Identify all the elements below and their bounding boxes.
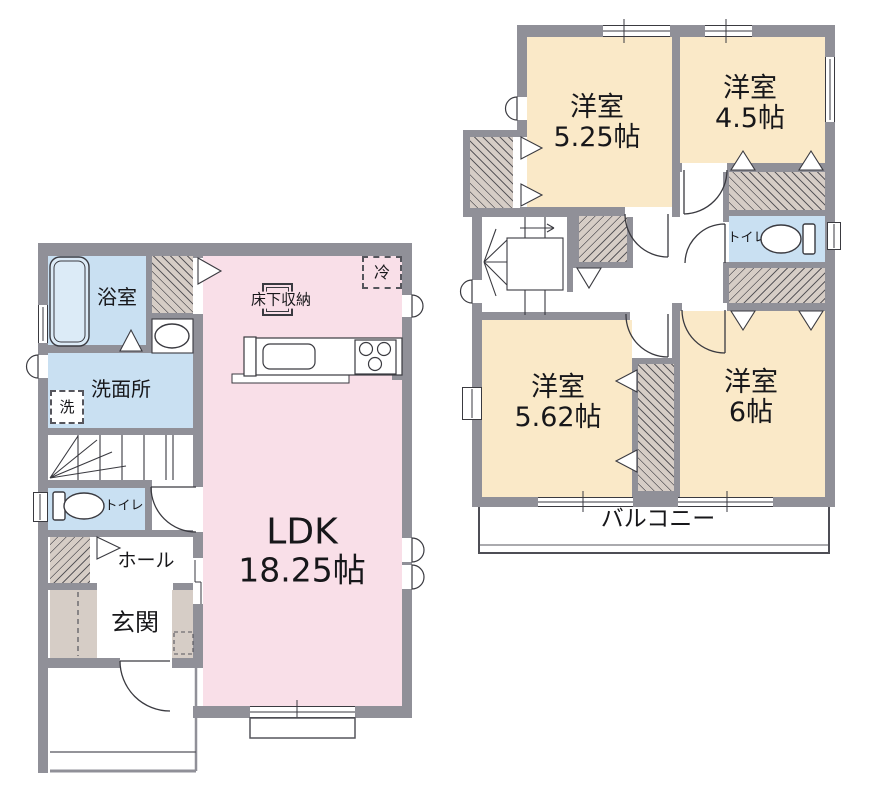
door-opening xyxy=(682,303,727,311)
door-opening xyxy=(402,295,412,317)
bath-label: 浴室 xyxy=(97,286,137,308)
door-opening xyxy=(630,312,672,320)
wall-segment xyxy=(472,207,482,507)
closet xyxy=(729,268,825,303)
wall-segment xyxy=(38,428,203,435)
room-562-name: 洋室 xyxy=(514,373,601,403)
ldk-name: LDK xyxy=(238,512,365,552)
closet xyxy=(152,256,193,313)
room-6-size: 6帖 xyxy=(724,398,778,428)
window xyxy=(603,25,670,37)
wall-segment xyxy=(38,243,412,256)
shoe-cabinet-left xyxy=(50,590,97,658)
window xyxy=(827,222,841,250)
washroom-label: 洗面所 xyxy=(91,378,151,400)
underfloor-storage-label: 床下収納 xyxy=(250,292,312,309)
room-562-label: 洋室 5.62帖 xyxy=(514,373,601,433)
sliding-door xyxy=(193,558,203,604)
window xyxy=(250,706,355,718)
room-562-size: 5.62帖 xyxy=(514,403,601,433)
laundry-box: 洗 xyxy=(50,390,84,424)
wall-segment xyxy=(145,480,152,537)
room-45-name: 洋室 xyxy=(715,74,785,104)
window xyxy=(462,387,482,420)
door-opening xyxy=(625,207,672,217)
door-opening xyxy=(517,97,527,120)
closet xyxy=(579,216,627,262)
hall-closet xyxy=(50,537,90,583)
room-6-name: 洋室 xyxy=(724,368,778,398)
ldk-size: 18.25帖 xyxy=(238,553,365,590)
balcony-label: バルコニー xyxy=(601,507,716,533)
floor-plan: 冷 洗 浴室 洗面所 トイレ ホール 玄関 LDK 18.25帖 床下収納 洋室… xyxy=(0,0,873,800)
door-opening xyxy=(120,658,172,668)
room-525-name: 洋室 xyxy=(553,93,640,123)
wall-segment xyxy=(38,480,152,488)
window xyxy=(705,25,752,37)
wall-segment xyxy=(152,313,193,319)
room-45-size: 4.5帖 xyxy=(715,104,785,134)
stairs-1f xyxy=(50,435,173,480)
hall-label: ホール xyxy=(117,550,174,571)
door-opening xyxy=(193,487,203,532)
closet xyxy=(638,364,674,491)
closet-front xyxy=(513,137,520,208)
window xyxy=(825,57,835,122)
wall-segment xyxy=(517,25,527,137)
room-525-size: 5.25帖 xyxy=(553,123,640,153)
refrigerator-box: 冷 xyxy=(362,256,402,289)
laundry-label: 洗 xyxy=(59,399,74,416)
door-opening xyxy=(193,258,203,314)
wall-segment xyxy=(723,210,825,216)
door-opening xyxy=(402,538,412,562)
porch-lines xyxy=(50,668,196,771)
door-opening xyxy=(402,565,412,589)
wall-segment xyxy=(48,345,152,353)
wall-segment xyxy=(38,530,203,537)
wall-segment xyxy=(38,583,97,590)
room-525-label: 洋室 5.25帖 xyxy=(553,93,640,153)
wall-segment xyxy=(392,338,402,380)
wall-segment xyxy=(472,312,630,320)
closet xyxy=(729,172,825,210)
room-45-label: 洋室 4.5帖 xyxy=(715,74,785,134)
stairs-2f xyxy=(484,217,563,315)
wall-segment xyxy=(672,37,680,217)
toilet-2f-label: トイレ xyxy=(727,232,766,247)
window xyxy=(38,305,48,343)
vanity-sink-icon xyxy=(152,319,193,353)
window xyxy=(33,492,48,522)
door-opening xyxy=(682,163,727,172)
ldk-room xyxy=(203,256,402,706)
ldk-label: LDK 18.25帖 xyxy=(238,512,365,589)
refrigerator-label: 冷 xyxy=(374,264,390,282)
door-opening xyxy=(38,355,48,378)
terrace-step xyxy=(250,718,355,738)
toilet-1f-label: トイレ xyxy=(104,500,143,515)
wall-segment xyxy=(146,253,152,352)
wall-segment xyxy=(517,25,835,37)
room-6-label: 洋室 6帖 xyxy=(724,368,778,428)
entrance-label: 玄関 xyxy=(111,610,159,637)
door-opening xyxy=(472,280,482,303)
closet xyxy=(470,137,513,208)
wall-segment xyxy=(672,310,680,358)
shoe-cabinet-right xyxy=(172,590,193,658)
